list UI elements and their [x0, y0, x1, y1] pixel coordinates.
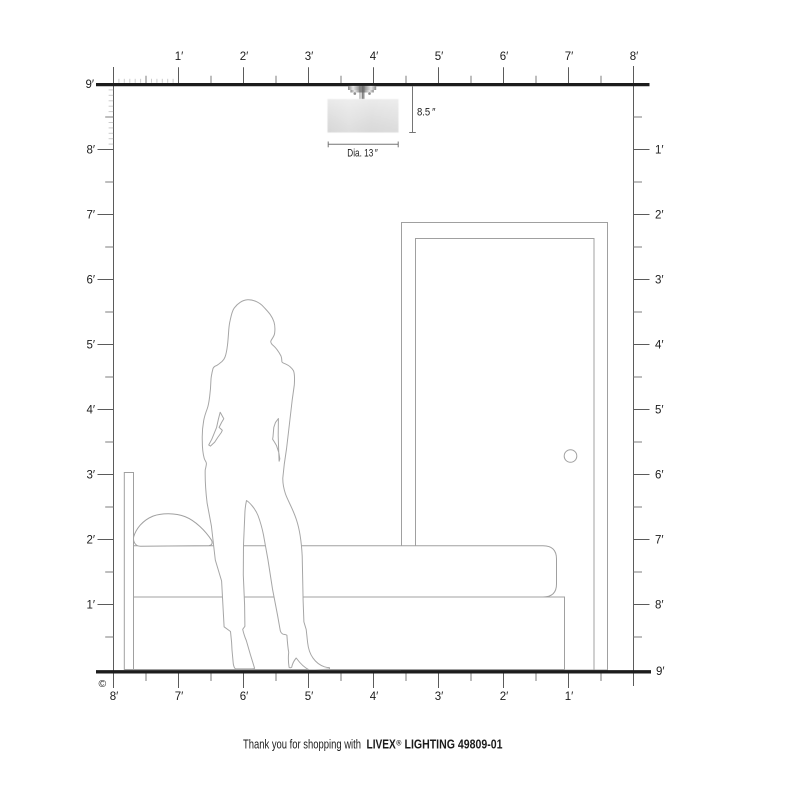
svg-text:5′: 5′: [86, 340, 95, 352]
svg-text:6′: 6′: [240, 691, 249, 703]
svg-text:9′: 9′: [656, 666, 665, 678]
svg-text:5′: 5′: [435, 51, 444, 63]
svg-text:3′: 3′: [86, 470, 95, 482]
svg-text:1′: 1′: [86, 600, 95, 612]
svg-text:1′: 1′: [565, 691, 574, 703]
svg-text:5′: 5′: [305, 691, 314, 703]
svg-text:4′: 4′: [655, 340, 664, 352]
svg-text:LIVEX: LIVEX: [367, 737, 397, 752]
svg-text:©: ©: [99, 678, 107, 690]
svg-text:®: ®: [396, 740, 402, 748]
svg-text:5′: 5′: [655, 405, 664, 417]
svg-text:6′: 6′: [86, 275, 95, 287]
svg-text:8.5 ″: 8.5 ″: [417, 107, 436, 119]
svg-text:7′: 7′: [86, 210, 95, 222]
svg-text:2′: 2′: [86, 535, 95, 547]
svg-text:1′: 1′: [655, 145, 664, 157]
svg-text:7′: 7′: [655, 535, 664, 547]
svg-text:4′: 4′: [370, 691, 379, 703]
svg-text:3′: 3′: [305, 51, 314, 63]
svg-text:8′: 8′: [86, 145, 95, 157]
svg-text:Thank you for shopping with: Thank you for shopping with: [243, 737, 361, 752]
svg-text:4′: 4′: [86, 405, 95, 417]
svg-text:8′: 8′: [655, 600, 664, 612]
svg-text:6′: 6′: [500, 51, 509, 63]
svg-text:2′: 2′: [240, 51, 249, 63]
svg-text:8′: 8′: [630, 51, 639, 63]
svg-text:3′: 3′: [655, 275, 664, 287]
svg-text:2′: 2′: [500, 691, 509, 703]
svg-text:Dia. 13 ″: Dia. 13 ″: [347, 148, 378, 160]
svg-text:7′: 7′: [175, 691, 184, 703]
svg-text:9′: 9′: [85, 79, 94, 91]
svg-text:4′: 4′: [370, 51, 379, 63]
svg-text:3′: 3′: [435, 691, 444, 703]
svg-text:6′: 6′: [655, 470, 664, 482]
svg-text:7′: 7′: [565, 51, 574, 63]
svg-text:2′: 2′: [655, 210, 664, 222]
svg-text:1′: 1′: [175, 51, 184, 63]
svg-text:8′: 8′: [110, 691, 119, 703]
svg-text:LIGHTING 49809-01: LIGHTING 49809-01: [405, 737, 503, 752]
